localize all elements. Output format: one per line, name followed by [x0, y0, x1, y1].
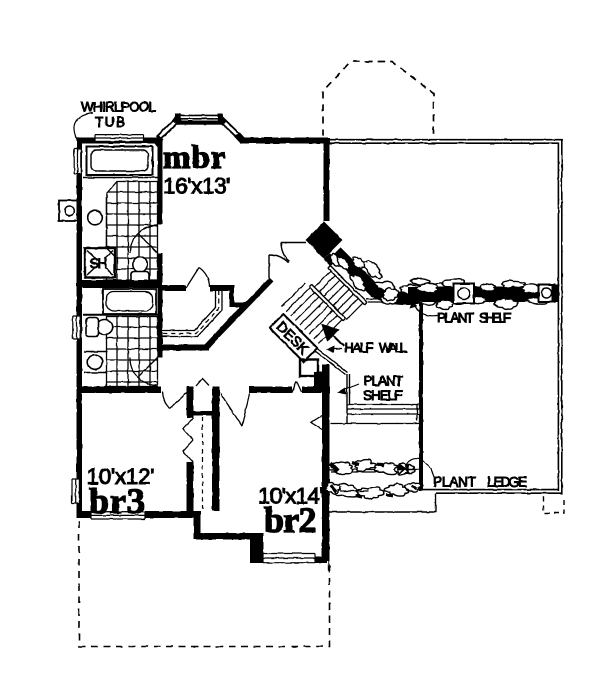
- svg-text:WHIRLPOOL: WHIRLPOOL: [81, 100, 156, 115]
- svg-text:SH: SH: [90, 256, 108, 271]
- svg-text:PLANT: PLANT: [364, 374, 404, 389]
- svg-text:PLANT: PLANT: [433, 475, 476, 490]
- svg-text:SHELF: SHELF: [363, 388, 403, 403]
- svg-text:PLANT: PLANT: [437, 311, 474, 326]
- svg-text:16'x13': 16'x13': [163, 174, 231, 199]
- svg-text:HALF: HALF: [344, 341, 374, 356]
- svg-text:WALL: WALL: [379, 341, 407, 356]
- svg-text:br2: br2: [264, 500, 317, 540]
- svg-text:mbr: mbr: [163, 140, 226, 176]
- svg-text:TUB: TUB: [95, 115, 125, 130]
- svg-text:SHELF: SHELF: [479, 311, 511, 326]
- svg-text:LEDGE: LEDGE: [487, 475, 527, 490]
- svg-text:br3: br3: [89, 481, 145, 521]
